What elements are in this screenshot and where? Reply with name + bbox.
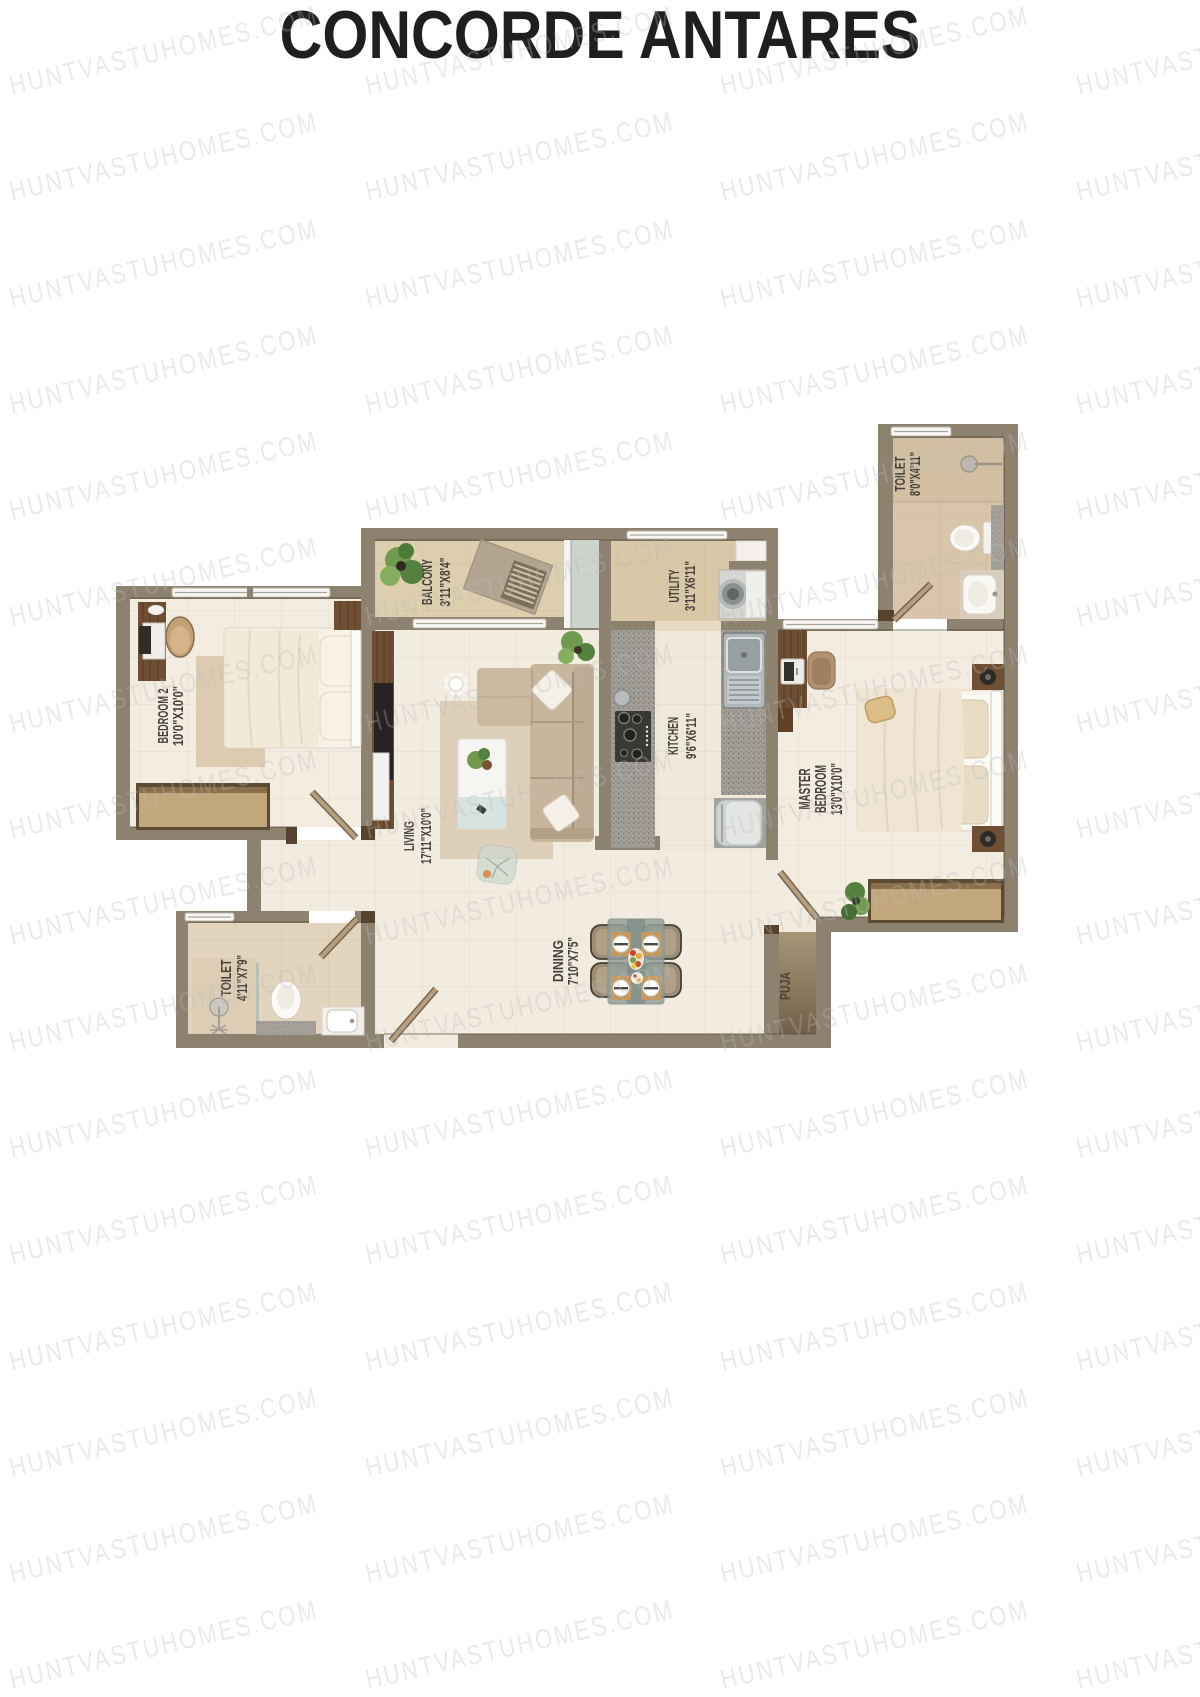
svg-text:HUNTVASTUHOMES.COM: HUNTVASTUHOMES.COM [717, 1169, 1032, 1270]
svg-text:HUNTVASTUHOMES.COM: HUNTVASTUHOMES.COM [362, 1169, 677, 1270]
svg-text:HUNTVASTUHOMES.COM: HUNTVASTUHOMES.COM [6, 213, 321, 314]
svg-text:HUNTVASTUHOMES.COM: HUNTVASTUHOMES.COM [6, 1382, 321, 1483]
svg-text:HUNTVASTUHOMES.COM: HUNTVASTUHOMES.COM [1073, 744, 1200, 845]
svg-text:9'6"X6'11": 9'6"X6'11" [683, 713, 700, 759]
svg-text:HUNTVASTUHOMES.COM: HUNTVASTUHOMES.COM [6, 0, 321, 101]
svg-text:HUNTVASTUHOMES.COM: HUNTVASTUHOMES.COM [6, 1063, 321, 1164]
svg-text:HUNTVASTUHOMES.COM: HUNTVASTUHOMES.COM [1073, 1382, 1200, 1483]
svg-text:HUNTVASTUHOMES.COM: HUNTVASTUHOMES.COM [6, 1594, 321, 1695]
svg-text:HUNTVASTUHOMES.COM: HUNTVASTUHOMES.COM [717, 106, 1032, 207]
svg-text:HUNTVASTUHOMES.COM: HUNTVASTUHOMES.COM [717, 1594, 1032, 1695]
svg-text:HUNTVASTUHOMES.COM: HUNTVASTUHOMES.COM [6, 1276, 321, 1377]
svg-text:HUNTVASTUHOMES.COM: HUNTVASTUHOMES.COM [1073, 638, 1200, 739]
svg-text:HUNTVASTUHOMES.COM: HUNTVASTUHOMES.COM [717, 1063, 1032, 1164]
svg-text:HUNTVASTUHOMES.COM: HUNTVASTUHOMES.COM [1073, 1594, 1200, 1695]
svg-text:UTILITY: UTILITY [666, 570, 683, 603]
svg-text:HUNTVASTUHOMES.COM: HUNTVASTUHOMES.COM [1073, 425, 1200, 526]
svg-text:HUNTVASTUHOMES.COM: HUNTVASTUHOMES.COM [1073, 319, 1200, 420]
svg-text:HUNTVASTUHOMES.COM: HUNTVASTUHOMES.COM [6, 319, 321, 420]
svg-text:HUNTVASTUHOMES.COM: HUNTVASTUHOMES.COM [362, 1063, 677, 1164]
svg-text:HUNTVASTUHOMES.COM: HUNTVASTUHOMES.COM [362, 1276, 677, 1377]
svg-text:HUNTVASTUHOMES.COM: HUNTVASTUHOMES.COM [717, 319, 1032, 420]
svg-text:HUNTVASTUHOMES.COM: HUNTVASTUHOMES.COM [362, 106, 677, 207]
svg-text:HUNTVASTUHOMES.COM: HUNTVASTUHOMES.COM [1073, 850, 1200, 951]
svg-text:PUJA: PUJA [777, 972, 794, 1000]
svg-text:HUNTVASTUHOMES.COM: HUNTVASTUHOMES.COM [362, 1594, 677, 1695]
svg-text:HUNTVASTUHOMES.COM: HUNTVASTUHOMES.COM [1073, 1063, 1200, 1164]
svg-text:HUNTVASTUHOMES.COM: HUNTVASTUHOMES.COM [717, 1488, 1032, 1589]
svg-text:HUNTVASTUHOMES.COM: HUNTVASTUHOMES.COM [6, 425, 321, 526]
svg-text:HUNTVASTUHOMES.COM: HUNTVASTUHOMES.COM [1073, 531, 1200, 632]
svg-text:HUNTVASTUHOMES.COM: HUNTVASTUHOMES.COM [362, 1488, 677, 1589]
svg-text:HUNTVASTUHOMES.COM: HUNTVASTUHOMES.COM [362, 425, 677, 526]
svg-text:3'11"X6'11": 3'11"X6'11" [682, 561, 699, 611]
svg-text:HUNTVASTUHOMES.COM: HUNTVASTUHOMES.COM [717, 1276, 1032, 1377]
svg-text:HUNTVASTUHOMES.COM: HUNTVASTUHOMES.COM [362, 319, 677, 420]
svg-text:HUNTVASTUHOMES.COM: HUNTVASTUHOMES.COM [717, 1382, 1032, 1483]
svg-text:HUNTVASTUHOMES.COM: HUNTVASTUHOMES.COM [362, 213, 677, 314]
svg-text:HUNTVASTUHOMES.COM: HUNTVASTUHOMES.COM [6, 1169, 321, 1270]
svg-text:HUNTVASTUHOMES.COM: HUNTVASTUHOMES.COM [1073, 1276, 1200, 1377]
svg-text:HUNTVASTUHOMES.COM: HUNTVASTUHOMES.COM [1073, 1488, 1200, 1589]
svg-text:HUNTVASTUHOMES.COM: HUNTVASTUHOMES.COM [362, 1382, 677, 1483]
svg-text:HUNTVASTUHOMES.COM: HUNTVASTUHOMES.COM [1073, 0, 1200, 101]
svg-text:HUNTVASTUHOMES.COM: HUNTVASTUHOMES.COM [6, 106, 321, 207]
svg-text:HUNTVASTUHOMES.COM: HUNTVASTUHOMES.COM [1073, 1169, 1200, 1270]
svg-text:HUNTVASTUHOMES.COM: HUNTVASTUHOMES.COM [6, 1488, 321, 1589]
svg-text:HUNTVASTUHOMES.COM: HUNTVASTUHOMES.COM [1073, 213, 1200, 314]
svg-text:HUNTVASTUHOMES.COM: HUNTVASTUHOMES.COM [1073, 106, 1200, 207]
svg-text:HUNTVASTUHOMES.COM: HUNTVASTUHOMES.COM [717, 213, 1032, 314]
svg-text:HUNTVASTUHOMES.COM: HUNTVASTUHOMES.COM [1073, 957, 1200, 1058]
